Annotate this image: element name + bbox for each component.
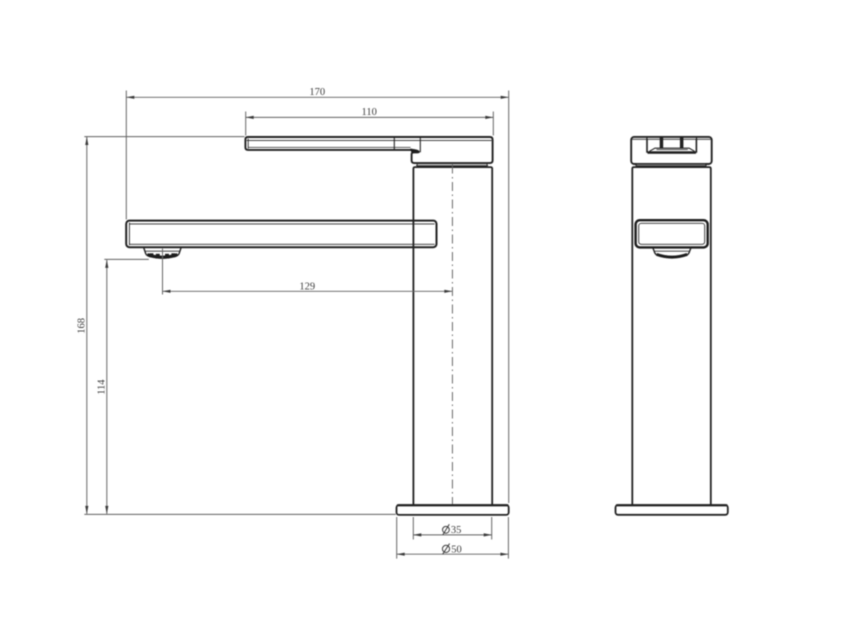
- svg-text:168: 168: [77, 318, 88, 334]
- svg-text:114: 114: [97, 379, 108, 395]
- svg-text:129: 129: [299, 281, 315, 292]
- svg-text:110: 110: [362, 107, 377, 118]
- svg-text:35: 35: [451, 525, 462, 536]
- svg-text:170: 170: [309, 87, 325, 98]
- svg-text:50: 50: [451, 544, 462, 555]
